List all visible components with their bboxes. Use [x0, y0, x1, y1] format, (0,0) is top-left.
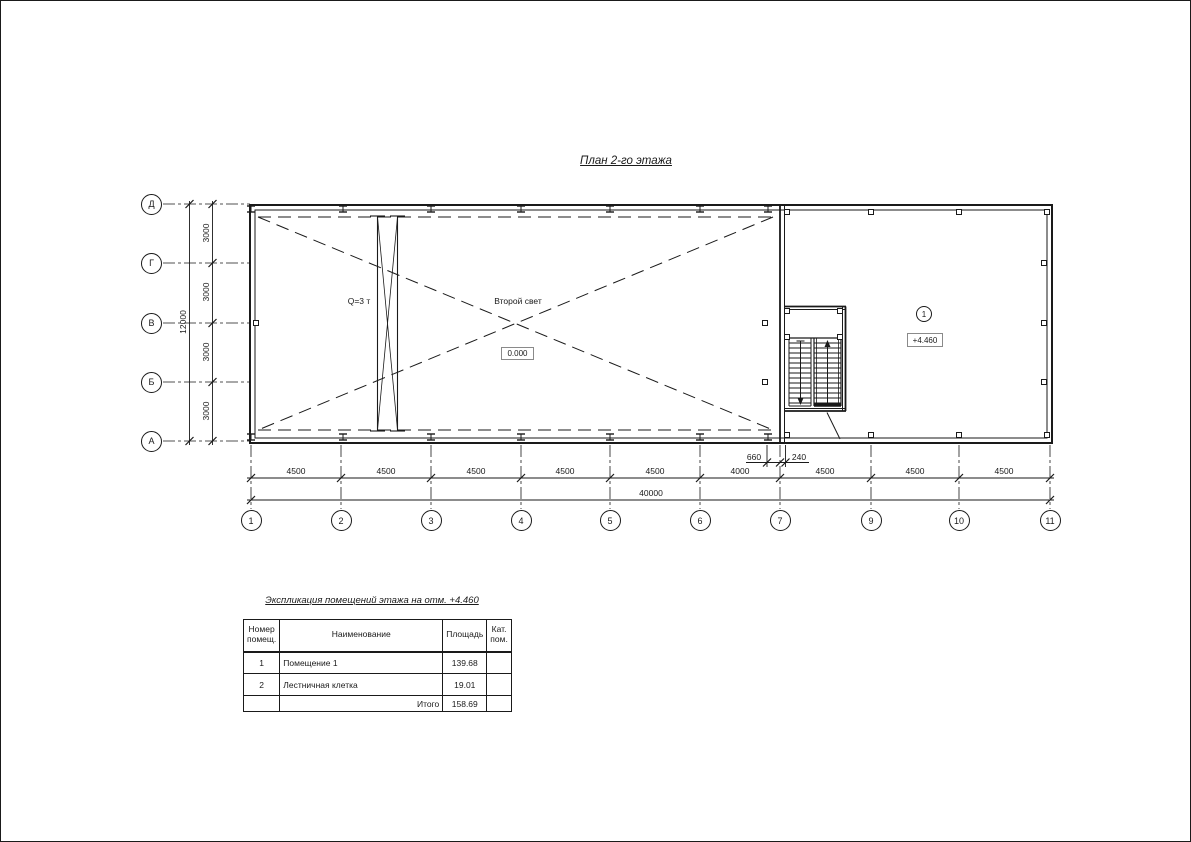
room-name: Помещение 1: [280, 652, 443, 674]
column-marker: [1042, 321, 1047, 326]
room-number-value: 1: [922, 310, 926, 319]
axis-bubble-b: Б: [141, 372, 162, 393]
dim-bottom-seg-9: 4500: [995, 466, 1014, 476]
dim-bottom-seg-4: 4500: [556, 466, 575, 476]
col-header-number: Номер помещ.: [244, 620, 280, 652]
column-marker: [254, 321, 259, 326]
outer-walls: [250, 205, 1052, 443]
stair-arrow-up: [824, 340, 832, 404]
room-num: 1: [244, 652, 280, 674]
dim-bottom-total: 40000: [639, 488, 663, 498]
table-row: 2 Лестничная клетка 19.01: [244, 674, 512, 696]
elevation-zero-value: 0.000: [507, 349, 527, 358]
dim-bottom-seg-8: 4500: [906, 466, 925, 476]
column-marker: [838, 335, 843, 340]
axis-bubble-5: 5: [600, 510, 621, 531]
column-marker: [785, 210, 790, 215]
room-elevation-value: +4.460: [913, 336, 938, 345]
room-num: 2: [244, 674, 280, 696]
column-marker: [1045, 210, 1050, 215]
column-marker: [785, 335, 790, 340]
dim-left-total: 12000: [178, 310, 188, 334]
dim-stair-offset-240: 240: [792, 452, 806, 462]
axis-bubble-a: А: [141, 431, 162, 452]
axis-bubble-7: 7: [770, 510, 791, 531]
axis-bubble-9: 9: [861, 510, 882, 531]
col-header-area: Площадь: [443, 620, 487, 652]
drawing-sheet: План 2-го этажа Q=3 т Второй свет 0.000 …: [0, 0, 1191, 842]
explication-header-row: Номер помещ. Наименование Площадь Кат. п…: [244, 620, 512, 652]
axis-bubble-g: Г: [141, 253, 162, 274]
column-marker: [838, 309, 843, 314]
room-area: 19.01: [443, 674, 487, 696]
total-num: [244, 696, 280, 712]
dim-left-seg-2: 3000: [201, 283, 211, 302]
column-marker: [957, 433, 962, 438]
axis-bubble-2: 2: [331, 510, 352, 531]
second-light-opening: [258, 217, 773, 430]
column-marker: [1045, 433, 1050, 438]
dim-bottom-seg-5: 4500: [646, 466, 665, 476]
page-title: План 2-го этажа: [580, 155, 672, 167]
dim-bottom-seg-2: 4500: [377, 466, 396, 476]
dim-bottom-seg-7: 4500: [816, 466, 835, 476]
dim-bottom-seg-3: 4500: [467, 466, 486, 476]
dim-left-seg-1: 3000: [201, 224, 211, 243]
column-marker: [957, 210, 962, 215]
column-marker: [763, 380, 768, 385]
column-marker: [1042, 261, 1047, 266]
room-area: 139.68: [443, 652, 487, 674]
total-cat: [487, 696, 512, 712]
column-marker: [869, 210, 874, 215]
second-light-label: Второй свет: [494, 296, 542, 306]
col-header-name: Наименование: [280, 620, 443, 652]
dim-stair-offset-660: 660: [747, 452, 761, 462]
explication-title: Экспликация помещений этажа на отм. +4.4…: [265, 595, 478, 606]
room-elevation-box: +4.460: [907, 333, 943, 347]
axis-bubble-1: 1: [241, 510, 262, 531]
axis-bubble-d: Д: [141, 194, 162, 215]
table-total-row: Итого 158.69: [244, 696, 512, 712]
elevation-zero-box: 0.000: [501, 347, 534, 360]
column-marker: [1042, 380, 1047, 385]
column-marker: [785, 309, 790, 314]
total-label: Итого: [280, 696, 443, 712]
room-name: Лестничная клетка: [280, 674, 443, 696]
axis-bubble-11: 11: [1040, 510, 1061, 531]
explication-table: Номер помещ. Наименование Площадь Кат. п…: [243, 619, 512, 712]
col-header-category: Кат. пом.: [487, 620, 512, 652]
axis-bubble-v: В: [141, 313, 162, 334]
axis-bubble-6: 6: [690, 510, 711, 531]
column-marker: [785, 433, 790, 438]
plan-linework: [1, 1, 1191, 842]
axis-bubble-10: 10: [949, 510, 970, 531]
stair-door-leaf: [827, 413, 840, 440]
column-marker: [763, 321, 768, 326]
crane-runway-symbol: [370, 216, 405, 431]
dim-bottom-seg-1: 4500: [287, 466, 306, 476]
dimension-lines: [190, 201, 1055, 500]
column-marker: [869, 433, 874, 438]
axis-bubble-4: 4: [511, 510, 532, 531]
dim-left-seg-3: 3000: [201, 343, 211, 362]
table-row: 1 Помещение 1 139.68: [244, 652, 512, 674]
generated-linework: [163, 200, 1054, 509]
room-cat: [487, 674, 512, 696]
dim-bottom-seg-6: 4000: [731, 466, 750, 476]
dim-left-seg-4: 3000: [201, 402, 211, 421]
crane-capacity-label: Q=3 т: [348, 296, 371, 306]
room-number-marker: 1: [916, 306, 932, 322]
total-area: 158.69: [443, 696, 487, 712]
room-cat: [487, 652, 512, 674]
axis-bubble-3: 3: [421, 510, 442, 531]
